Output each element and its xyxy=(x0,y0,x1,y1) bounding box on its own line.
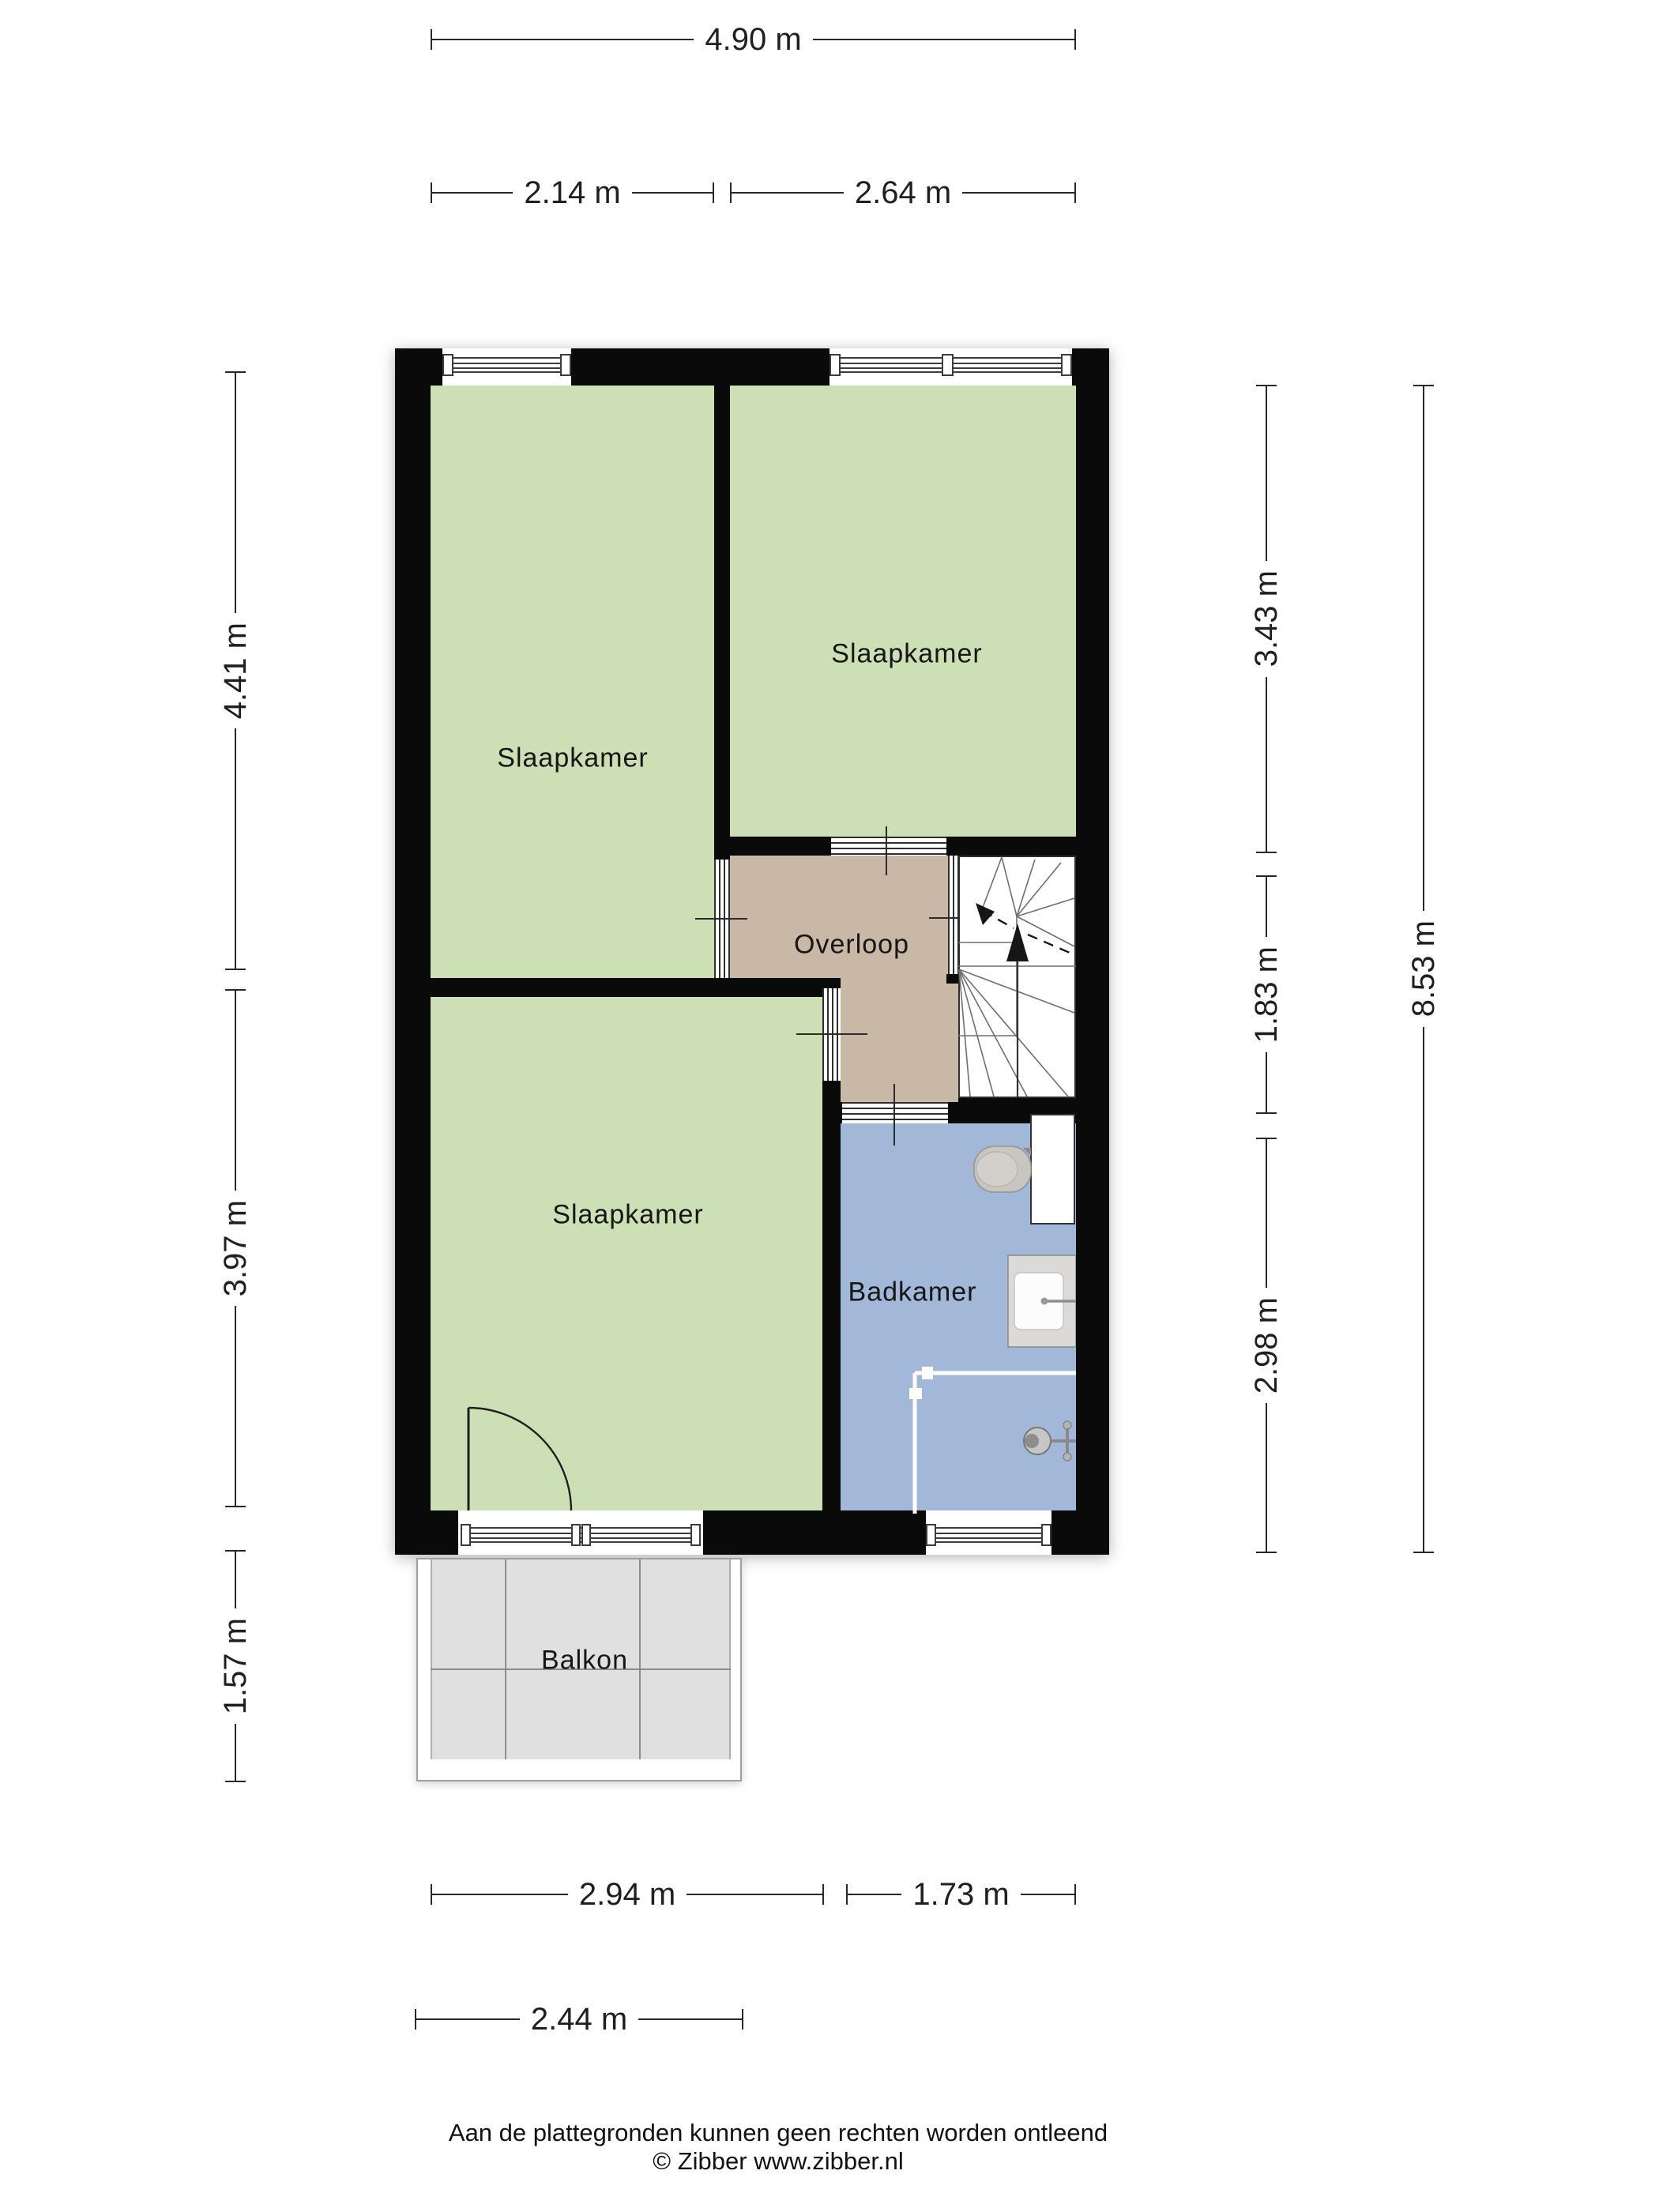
dim-label: 4.41 m xyxy=(220,613,251,728)
room-label-bedroom-top-left: Slaapkamer xyxy=(497,743,648,774)
dim-right-upper: 3.43 m xyxy=(1255,385,1277,853)
dim-top-right: 2.64 m xyxy=(730,182,1076,204)
shelf-icon xyxy=(1031,1115,1074,1224)
dim-label: 2.14 m xyxy=(513,177,631,209)
dim-label: 8.53 m xyxy=(1408,911,1439,1026)
dim-top-left: 2.14 m xyxy=(431,182,714,204)
window-post xyxy=(581,1524,591,1546)
dim-label: 1.57 m xyxy=(220,1608,251,1724)
passage-landing-bedroom-top-right xyxy=(831,837,946,856)
dim-label: 1.83 m xyxy=(1251,937,1282,1052)
balcony-door-window-icon xyxy=(461,1527,701,1543)
window-post xyxy=(829,354,841,376)
dim-label: 2.94 m xyxy=(568,1879,687,1910)
room-bedroom-top-left xyxy=(431,386,714,978)
toilet-icon xyxy=(974,1146,1031,1192)
dim-label: 4.90 m xyxy=(694,24,812,55)
wall-stub-stairs xyxy=(946,974,958,984)
shower-icon xyxy=(909,1367,1076,1514)
dim-label: 3.97 m xyxy=(220,1191,251,1306)
passage-tick-top-right xyxy=(886,826,887,875)
washbasin-icon xyxy=(1008,1255,1076,1347)
balcony-joint-line xyxy=(639,1559,641,1759)
window-post xyxy=(942,354,954,376)
door-swing-icon xyxy=(442,1389,600,1515)
dim-right-lower: 2.98 m xyxy=(1255,1138,1277,1553)
dim-left-lower: 1.57 m xyxy=(224,1550,246,1782)
balcony-joint-line xyxy=(505,1559,506,1759)
room-landing-corridor xyxy=(841,978,958,1102)
dim-bottom-left: 2.94 m xyxy=(431,1883,824,1905)
room-label-landing: Overloop xyxy=(794,930,909,961)
dim-left-middle: 3.97 m xyxy=(224,989,246,1507)
window-post xyxy=(442,354,453,376)
wall-bedrooms-horizontal xyxy=(431,978,841,997)
window-bathroom-icon xyxy=(926,1527,1051,1543)
dim-right-middle: 1.83 m xyxy=(1255,875,1277,1114)
window-post xyxy=(1061,354,1072,376)
dim-right-total: 8.53 m xyxy=(1413,385,1435,1553)
bathroom-fixtures xyxy=(841,1102,1076,1514)
footer: Aan de plattegronden kunnen geen rechten… xyxy=(449,2119,1108,2176)
dim-label: 2.64 m xyxy=(844,177,962,209)
window-post xyxy=(560,354,571,376)
dim-balcony-width: 2.44 m xyxy=(415,2008,743,2030)
room-label-balcony: Balkon xyxy=(541,1646,628,1676)
window-post xyxy=(1041,1524,1051,1546)
dim-label: 2.98 m xyxy=(1251,1288,1282,1403)
window-top-left-icon xyxy=(442,357,571,373)
dim-bottom-right: 1.73 m xyxy=(846,1883,1076,1905)
dim-left-upper: 4.41 m xyxy=(224,371,246,970)
dim-label: 3.43 m xyxy=(1251,561,1282,676)
passage-tick-bottom xyxy=(796,1033,867,1035)
dim-label: 1.73 m xyxy=(901,1879,1020,1910)
wall-exterior-left xyxy=(395,348,431,1555)
passage-landing-stairs xyxy=(948,856,958,974)
room-label-bedroom-bottom: Slaapkamer xyxy=(552,1200,703,1231)
window-post xyxy=(571,1524,581,1546)
window-post xyxy=(926,1524,936,1546)
passage-tick-left xyxy=(695,918,747,920)
room-label-bedroom-top-right: Slaapkamer xyxy=(831,639,982,670)
footer-credit: © Zibber www.zibber.nl xyxy=(449,2147,1108,2176)
window-post xyxy=(690,1524,701,1546)
window-post xyxy=(461,1524,471,1546)
wall-exterior-right xyxy=(1076,348,1109,1555)
stairs-icon xyxy=(958,856,1076,1098)
dim-top-total: 4.90 m xyxy=(431,28,1076,51)
floorplan-page: Slaapkamer Slaapkamer Slaapkamer Overloo… xyxy=(0,0,1659,2212)
footer-disclaimer: Aan de plattegronden kunnen geen rechten… xyxy=(449,2119,1108,2147)
room-label-bathroom: Badkamer xyxy=(848,1277,977,1308)
room-bedroom-top-right xyxy=(730,386,1076,837)
dim-label: 2.44 m xyxy=(520,2003,638,2035)
